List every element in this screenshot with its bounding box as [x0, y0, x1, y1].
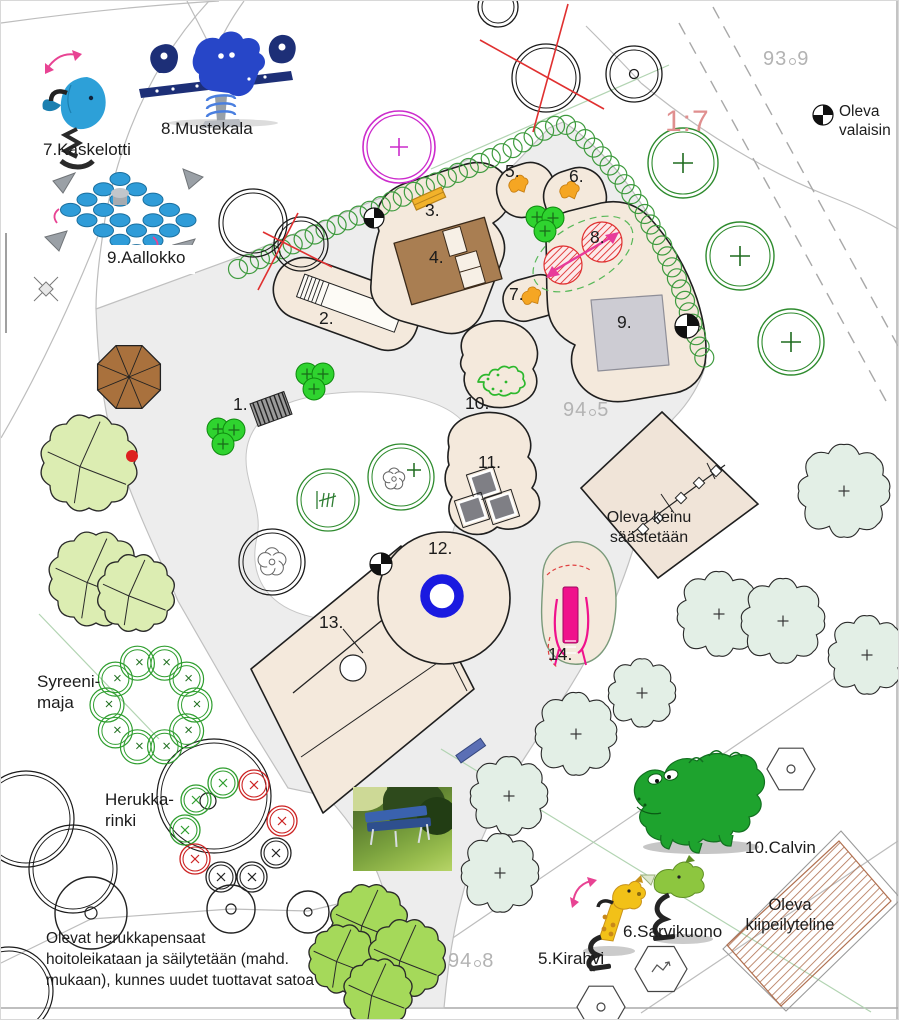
shrub-note: Olevat herukkapensaat hoitoleikataan ja … — [46, 928, 314, 991]
herukka-rinki-label: Herukka-rinki — [105, 789, 197, 831]
carousel — [425, 579, 459, 613]
area-label-6: 6. — [569, 166, 584, 187]
area-label-2: 2. — [319, 308, 334, 329]
mustekala-label: 8.Mustekala — [161, 118, 253, 139]
kaskelotti-label: 7.Kaskelotti — [43, 139, 131, 160]
area-label-9: 9. — [617, 312, 632, 333]
red-dot-marker — [126, 450, 138, 462]
slope-label: 1:7 — [665, 111, 710, 132]
area-label-10: 10. — [465, 393, 489, 414]
area-label-4: 4. — [429, 247, 444, 268]
kiipeilyteline-label: Olevakiipeilyteline — [723, 895, 857, 935]
elevation-93-9: 939 — [763, 49, 809, 70]
elevation-94-5: 945 — [563, 400, 609, 421]
play-area-11 — [445, 412, 539, 534]
oleva-keinu-label: Oleva keinusäästetään — [593, 508, 705, 548]
area-label-3: 3. — [425, 200, 440, 221]
area-label-12: 12. — [428, 538, 452, 559]
area-label-5: 5. — [505, 161, 520, 182]
area-label-1: 1. — [233, 394, 248, 415]
umbrella-roof — [98, 346, 161, 409]
aallokko-label: 9.Aallokko — [103, 245, 195, 274]
area-label-11: 11. — [478, 452, 501, 473]
kirahvi-label: 5.Kirahvi — [538, 948, 604, 969]
aallokko-pad-9 — [591, 295, 669, 371]
oleva-valaisin-label: Oleva valaisin — [839, 102, 899, 140]
area-label-14: 14. — [548, 644, 572, 665]
bench-photo — [353, 787, 452, 871]
area-label-13: 13. — [319, 612, 343, 633]
elevation-94-8: 948 — [448, 951, 494, 972]
area-label-7: 7. — [509, 284, 524, 305]
syreeni-maja-label: Syreeni-maja — [37, 671, 121, 713]
calvin-label: 10.Calvin — [745, 837, 816, 858]
playground-site-plan: 1. 2. 3. 4. 5. 6. 7. 8. 9. 10. 11. 12. 1… — [0, 0, 899, 1020]
sarvikuono-label: 6.Sarvikuono — [623, 921, 722, 942]
area-label-8: 8. — [590, 227, 605, 248]
